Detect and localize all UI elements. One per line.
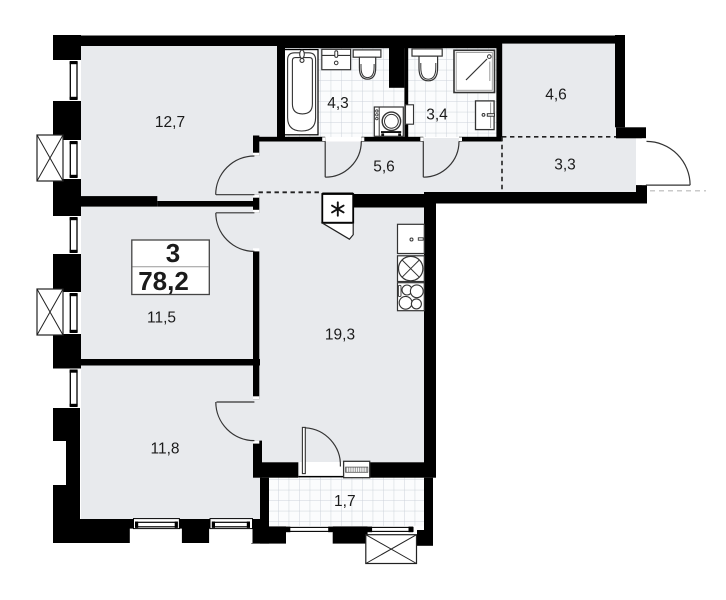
svg-text:3,4: 3,4 — [426, 107, 448, 124]
svg-text:3: 3 — [166, 238, 180, 268]
svg-text:3,3: 3,3 — [554, 157, 576, 174]
svg-text:12,7: 12,7 — [155, 114, 185, 131]
svg-text:11,8: 11,8 — [150, 441, 179, 458]
svg-text:4,6: 4,6 — [545, 87, 567, 104]
svg-text:5,6: 5,6 — [373, 159, 395, 176]
svg-text:78,2: 78,2 — [138, 266, 189, 296]
svg-text:4,3: 4,3 — [327, 95, 349, 112]
svg-text:19,3: 19,3 — [325, 327, 355, 344]
svg-text:1,7: 1,7 — [334, 493, 356, 510]
svg-text:11,5: 11,5 — [147, 309, 176, 326]
